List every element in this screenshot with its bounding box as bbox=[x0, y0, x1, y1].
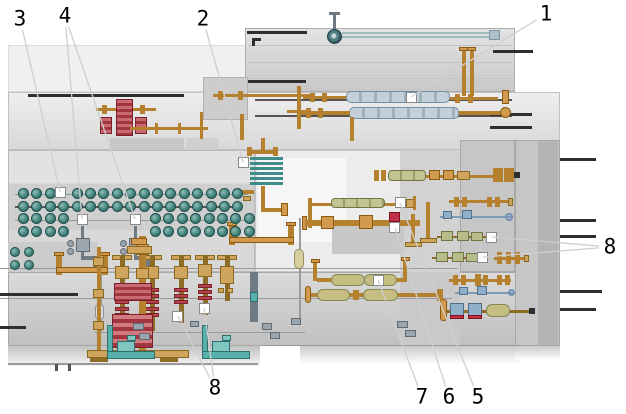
round-stock-circle bbox=[85, 188, 96, 199]
saw-nub bbox=[222, 335, 231, 341]
shaft-knob bbox=[322, 93, 327, 102]
shaft-knob bbox=[454, 197, 459, 207]
callout-label-1: 1 bbox=[540, 4, 553, 25]
loop-bar bbox=[229, 237, 294, 243]
reel-dblock bbox=[504, 168, 514, 182]
straightener-box bbox=[471, 232, 483, 241]
section-dash bbox=[28, 94, 184, 97]
post-foot bbox=[420, 238, 437, 243]
round-stock-circle bbox=[152, 188, 163, 199]
round-stock-circle bbox=[45, 201, 56, 212]
runout-capsule bbox=[363, 289, 398, 301]
floor-clip bbox=[190, 321, 199, 327]
link-capsule bbox=[294, 249, 304, 269]
end-ball bbox=[500, 107, 511, 118]
equipment-marker bbox=[77, 214, 88, 225]
shaft-knob bbox=[487, 197, 492, 207]
saw-rail bbox=[107, 351, 155, 359]
round-stock-circle bbox=[58, 201, 69, 212]
stack-knob bbox=[247, 147, 252, 156]
stack-bits bbox=[243, 196, 251, 201]
floor-clip bbox=[405, 330, 416, 337]
sizing-drum bbox=[331, 198, 385, 208]
floor-right-column-strip bbox=[538, 141, 558, 345]
saw-box bbox=[212, 341, 230, 352]
shaft-knob bbox=[483, 275, 488, 285]
reel-box bbox=[443, 170, 454, 180]
sizing-end-post bbox=[413, 196, 416, 210]
conveyor-end-block bbox=[489, 30, 500, 40]
gauge-ring bbox=[508, 289, 515, 296]
loop-cap bbox=[286, 222, 296, 226]
shaft-knob bbox=[461, 275, 466, 285]
shaft-knob bbox=[462, 197, 467, 207]
teal-line bbox=[342, 36, 498, 38]
equipment-marker bbox=[373, 275, 384, 286]
charger-rail bbox=[130, 127, 208, 130]
round-stock-circle bbox=[244, 226, 255, 237]
round-stock-circle bbox=[98, 201, 109, 212]
tilter-knob bbox=[67, 248, 74, 255]
post-block bbox=[93, 321, 104, 330]
coiler-cap bbox=[131, 238, 147, 245]
reel-knob bbox=[374, 170, 379, 181]
drawbench-post bbox=[411, 214, 415, 244]
floor-bottom-fade-right bbox=[300, 346, 520, 364]
floor-right-col-fade bbox=[515, 346, 560, 360]
shaft-knob bbox=[505, 275, 510, 285]
mill-bolt bbox=[218, 288, 224, 293]
shaft-knob bbox=[318, 108, 323, 118]
saw-rail bbox=[202, 351, 250, 359]
base-foot bbox=[90, 358, 108, 362]
gauge-clip bbox=[443, 211, 452, 219]
equipment-marker bbox=[238, 157, 249, 168]
round-stock-circle bbox=[219, 188, 230, 199]
shaft-knob bbox=[306, 108, 311, 118]
saw-nub bbox=[127, 335, 136, 341]
coupling-end bbox=[524, 255, 529, 262]
round-stock-circle bbox=[217, 226, 228, 237]
drawbench-box bbox=[359, 215, 373, 229]
feed-shaft bbox=[213, 94, 291, 97]
section-dash bbox=[560, 308, 596, 311]
loop-cap bbox=[54, 252, 64, 256]
bench-base bbox=[450, 315, 464, 319]
equipment-marker bbox=[199, 303, 210, 314]
section-dash bbox=[248, 80, 306, 83]
round-stock-circle bbox=[179, 188, 190, 199]
equipment-marker bbox=[389, 222, 400, 233]
pin-hub bbox=[327, 29, 342, 44]
rail-post bbox=[178, 123, 181, 134]
runout-end bbox=[437, 289, 443, 301]
round-stock-circle bbox=[232, 201, 243, 212]
round-stock-circle bbox=[177, 213, 188, 224]
equipment-marker bbox=[486, 232, 497, 243]
bench-flange bbox=[440, 299, 447, 321]
mill-stand bbox=[198, 296, 212, 300]
round-stock-circle bbox=[18, 188, 29, 199]
furnace-box bbox=[100, 117, 112, 134]
round-stock-circle bbox=[18, 213, 29, 224]
reel-knob bbox=[381, 170, 386, 181]
shaft-knob bbox=[453, 275, 458, 285]
round-stock-circle bbox=[10, 247, 20, 257]
loop-cap bbox=[100, 252, 110, 256]
round-stock-circle bbox=[206, 201, 217, 212]
stand-cap bbox=[467, 47, 476, 51]
callout-label-4: 4 bbox=[59, 6, 72, 27]
edge-line bbox=[260, 345, 520, 346]
gauge-clip bbox=[477, 286, 487, 295]
round-stock-circle bbox=[31, 226, 42, 237]
round-stock-circle bbox=[230, 226, 241, 237]
bench-capsule bbox=[486, 304, 510, 317]
round-stock-circle bbox=[31, 201, 42, 212]
shaft-knob bbox=[455, 94, 460, 103]
rail-end-post bbox=[200, 112, 203, 139]
section-dash bbox=[0, 326, 26, 329]
round-stock-circle bbox=[244, 213, 255, 224]
round-stock-circle bbox=[163, 226, 174, 237]
callout-label-6: 6 bbox=[443, 387, 456, 408]
stack-arm bbox=[263, 208, 283, 212]
drop-post bbox=[350, 117, 354, 141]
post-block bbox=[93, 289, 104, 298]
round-stock-circle bbox=[204, 226, 215, 237]
bench-base bbox=[468, 315, 482, 319]
runout-cap bbox=[311, 259, 320, 263]
round-stock-circle bbox=[152, 201, 163, 212]
round-stock-circle bbox=[45, 213, 56, 224]
section-dash bbox=[560, 235, 596, 238]
mill-box bbox=[115, 266, 129, 279]
profile-bar bbox=[250, 167, 283, 170]
gauge-clip bbox=[459, 287, 468, 295]
round-stock-circle bbox=[219, 201, 230, 212]
round-stock-circle bbox=[217, 213, 228, 224]
mill-bolt bbox=[227, 288, 233, 293]
round-stock-circle bbox=[10, 260, 20, 270]
stand-post bbox=[462, 50, 466, 96]
callout-label-5: 5 bbox=[472, 387, 485, 408]
callout-label-8: 8 bbox=[604, 237, 617, 258]
floor-clip bbox=[139, 333, 150, 340]
round-stock-circle bbox=[139, 188, 150, 199]
round-stock-circle bbox=[206, 188, 217, 199]
gauge-ring bbox=[505, 213, 513, 221]
spindle-end bbox=[508, 198, 513, 206]
runout-cap bbox=[401, 257, 410, 261]
round-stock-circle bbox=[112, 188, 123, 199]
callout-label-8: 8 bbox=[209, 378, 222, 399]
round-stock-circle bbox=[150, 226, 161, 237]
furnace-box bbox=[135, 117, 147, 134]
round-stock-circle bbox=[24, 247, 34, 257]
callout-label-7: 7 bbox=[416, 387, 429, 408]
profile-bar bbox=[250, 162, 283, 165]
round-stock-circle bbox=[150, 213, 161, 224]
section-dash bbox=[560, 219, 596, 222]
round-stock-circle bbox=[58, 226, 69, 237]
equipment-marker bbox=[55, 187, 66, 198]
equipment-marker bbox=[395, 197, 406, 208]
cross-post bbox=[297, 86, 301, 129]
mill-box bbox=[198, 264, 212, 277]
section-dash bbox=[493, 50, 533, 53]
shaft-knob bbox=[497, 252, 502, 264]
reel-dblock bbox=[493, 168, 503, 182]
straightener-box bbox=[436, 252, 448, 262]
runout-capsule bbox=[331, 274, 365, 286]
section-dash bbox=[560, 158, 596, 161]
round-stock-circle bbox=[125, 201, 136, 212]
tilter-box bbox=[76, 238, 90, 252]
floor-clip bbox=[262, 323, 272, 330]
shaft-knob bbox=[238, 91, 243, 100]
slab-seam bbox=[248, 45, 512, 46]
callout-label-3: 3 bbox=[14, 9, 27, 30]
stack-arm-pad bbox=[281, 203, 288, 216]
round-stock-circle bbox=[204, 213, 215, 224]
mill-stand bbox=[174, 300, 188, 304]
profile-bar bbox=[250, 157, 283, 160]
round-stock-circle bbox=[190, 226, 201, 237]
roller-line-lower bbox=[349, 107, 459, 119]
mill-stand bbox=[198, 284, 212, 288]
quench-band bbox=[250, 292, 258, 302]
tilter-knob bbox=[120, 240, 127, 247]
plant-layout: 342188765 bbox=[0, 0, 626, 414]
shaft-knob bbox=[218, 91, 223, 100]
round-stock-circle bbox=[24, 260, 34, 270]
equipment-marker bbox=[172, 311, 183, 322]
round-stock-circle bbox=[18, 201, 29, 212]
round-stock-circle bbox=[139, 201, 150, 212]
floor-clip bbox=[397, 321, 408, 328]
callout-label-2: 2 bbox=[197, 9, 210, 30]
pin-cap bbox=[329, 12, 340, 15]
straightener-box bbox=[457, 231, 469, 241]
shaft-knob bbox=[515, 252, 520, 264]
drawbench-head bbox=[389, 212, 400, 222]
drop-post bbox=[240, 114, 244, 140]
runout-post bbox=[403, 259, 407, 281]
round-stock-circle bbox=[72, 201, 83, 212]
round-stock-circle bbox=[177, 226, 188, 237]
round-stock-circle bbox=[192, 201, 203, 212]
section-dash bbox=[247, 31, 307, 34]
end-flange bbox=[502, 90, 509, 104]
edge-line bbox=[8, 363, 258, 365]
furnace-box bbox=[116, 99, 133, 136]
stand-post bbox=[470, 50, 474, 96]
rail-post bbox=[155, 123, 158, 134]
saw-box bbox=[117, 341, 135, 352]
profile-bar bbox=[250, 177, 283, 180]
section-dash bbox=[490, 126, 532, 129]
bench-tip bbox=[529, 308, 535, 314]
shaft-knob bbox=[495, 197, 500, 207]
stack-knob bbox=[273, 147, 278, 156]
mill-box bbox=[220, 266, 234, 284]
tilter-knob bbox=[67, 240, 74, 247]
round-stock-circle bbox=[112, 201, 123, 212]
round-stock-circle bbox=[85, 201, 96, 212]
mill-stand bbox=[198, 290, 212, 294]
drawbench-box bbox=[321, 216, 334, 229]
base-foot bbox=[160, 358, 178, 362]
column-block bbox=[136, 268, 149, 279]
mill-stand bbox=[145, 307, 159, 311]
profile-bar bbox=[250, 182, 283, 185]
equipment-marker bbox=[477, 252, 488, 263]
round-stock-circle bbox=[72, 188, 83, 199]
gauge-clip bbox=[462, 210, 472, 219]
shaft-knob bbox=[102, 105, 107, 114]
floor-clip bbox=[270, 332, 280, 339]
mill-box bbox=[174, 266, 188, 279]
equipment-marker bbox=[130, 214, 141, 225]
section-dash bbox=[560, 290, 602, 293]
reel-box bbox=[429, 170, 440, 180]
tick-mark bbox=[68, 364, 71, 371]
mill-stand bbox=[115, 307, 129, 311]
straightener-box bbox=[452, 252, 464, 262]
round-stock-circle bbox=[18, 226, 29, 237]
lower-shaft-b bbox=[459, 111, 501, 115]
post-block bbox=[93, 257, 104, 266]
runout-knob bbox=[353, 290, 359, 300]
shaft-knob bbox=[506, 252, 511, 264]
reel-box bbox=[457, 171, 470, 180]
drawbench-post bbox=[426, 202, 430, 240]
corner-mark bbox=[252, 38, 255, 46]
shaft-knob bbox=[310, 93, 315, 102]
mill-stand bbox=[174, 294, 188, 298]
floor-left-strip bbox=[9, 151, 254, 183]
shaft-knob bbox=[475, 274, 481, 286]
reel-drum bbox=[388, 170, 426, 181]
shaft-knob bbox=[140, 105, 145, 114]
round-stock-circle bbox=[45, 226, 56, 237]
reel-tip bbox=[514, 172, 520, 178]
shaft-knob bbox=[497, 275, 502, 285]
section-dash bbox=[0, 293, 78, 296]
round-stock-circle bbox=[179, 201, 190, 212]
tick-mark bbox=[55, 364, 58, 371]
floor-clip bbox=[133, 323, 144, 330]
straightener-box bbox=[441, 231, 453, 241]
coil-stack bbox=[114, 283, 152, 301]
profile-bar bbox=[250, 172, 283, 175]
runout-capsule bbox=[317, 289, 350, 301]
coiler-cross bbox=[127, 246, 152, 254]
equipment-marker bbox=[406, 92, 417, 103]
roller-line-upper bbox=[346, 91, 450, 103]
tilter-knob bbox=[120, 248, 127, 255]
mill-stand bbox=[174, 288, 188, 292]
teal-line bbox=[342, 32, 498, 34]
round-stock-circle bbox=[165, 201, 176, 212]
floor-clip bbox=[291, 318, 301, 325]
